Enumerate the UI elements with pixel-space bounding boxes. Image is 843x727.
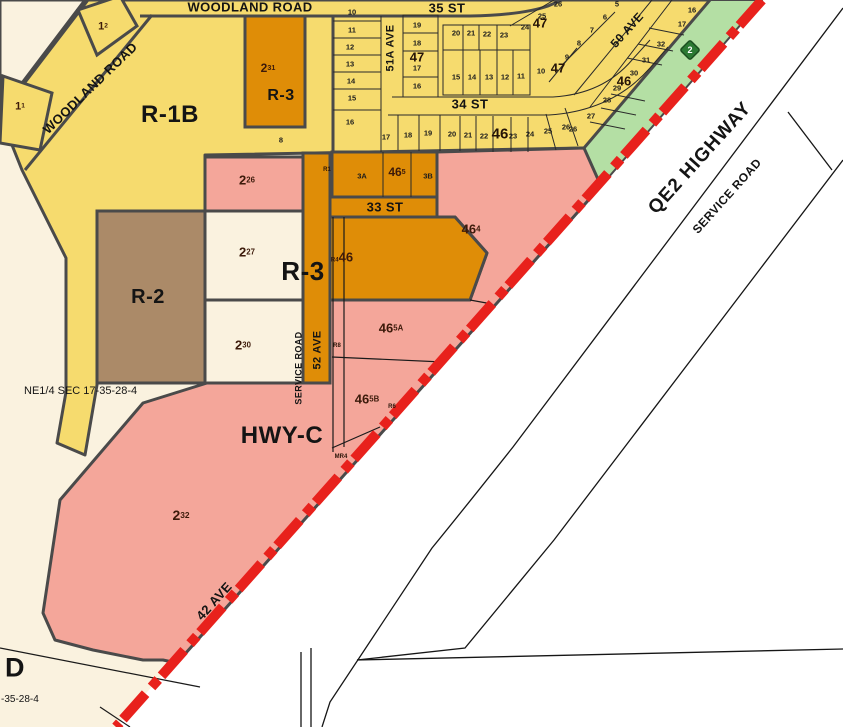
zoning-map: 2 WOODLAND ROAD WOODLAND ROAD 35 ST 34 S… [0, 0, 843, 727]
r3-small-lots-block [332, 152, 437, 197]
zone-r2-area [97, 211, 205, 383]
highway-shield-number: 2 [687, 45, 692, 55]
zone-r3-north-area [245, 16, 305, 127]
r3-service-road-strip [303, 153, 330, 383]
parcel-2-26-shape [205, 157, 303, 211]
zoning-map-canvas: 2 [0, 0, 843, 727]
